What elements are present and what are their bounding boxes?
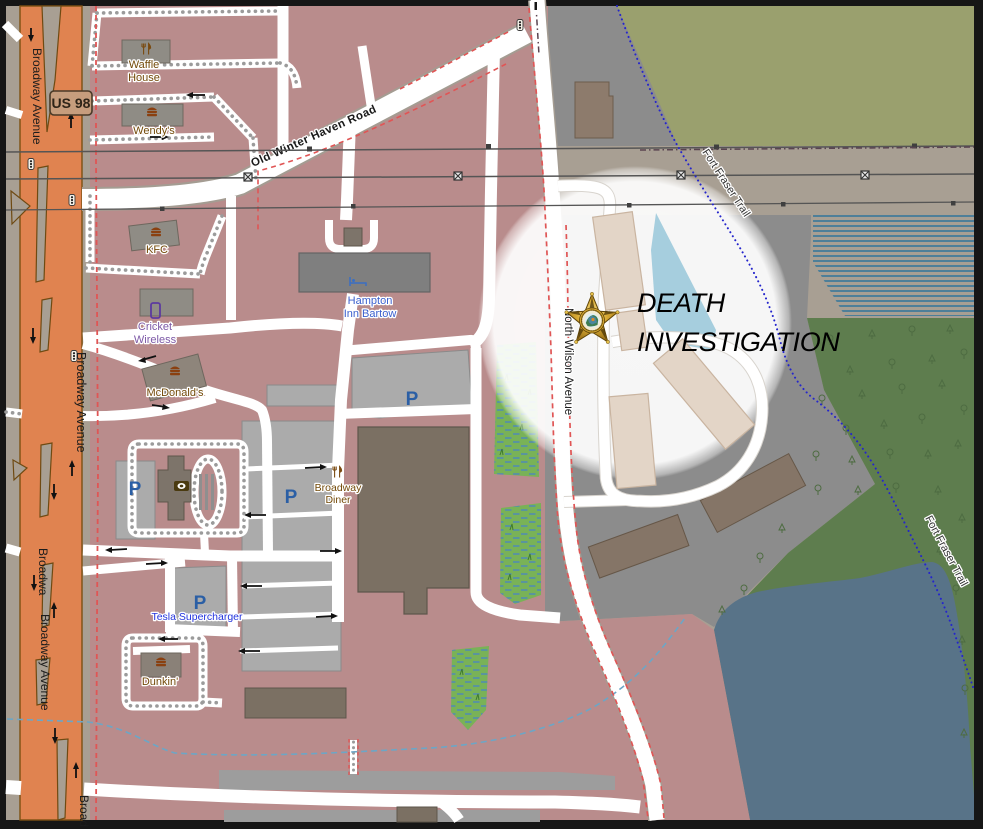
svg-text:Broad: Broad bbox=[77, 795, 91, 827]
svg-text:House: House bbox=[128, 72, 160, 84]
svg-text:Broadway Avenue: Broadway Avenue bbox=[74, 352, 88, 453]
svg-text:US 98: US 98 bbox=[52, 95, 91, 111]
svg-text:Broadway: Broadway bbox=[315, 482, 362, 494]
svg-text:Dunkin': Dunkin' bbox=[142, 676, 178, 688]
svg-text:McDonald's: McDonald's bbox=[146, 387, 204, 399]
svg-text:Wireless: Wireless bbox=[134, 334, 177, 346]
svg-text:P: P bbox=[406, 389, 419, 410]
svg-text:P: P bbox=[285, 487, 298, 508]
svg-text:Broadwa: Broadwa bbox=[36, 548, 50, 596]
svg-text:Broadway Avenue: Broadway Avenue bbox=[38, 614, 52, 711]
svg-text:DEATH: DEATH bbox=[637, 288, 726, 318]
svg-text:P: P bbox=[194, 593, 207, 614]
svg-text:Inn Bartow: Inn Bartow bbox=[344, 308, 397, 320]
svg-text:North Wilson Avenue: North Wilson Avenue bbox=[562, 308, 574, 415]
svg-text:Broadway Avenue: Broadway Avenue bbox=[30, 48, 44, 145]
svg-text:Hampton: Hampton bbox=[348, 295, 393, 307]
svg-text:KFC: KFC bbox=[146, 244, 168, 256]
svg-text:Wendy's: Wendy's bbox=[133, 125, 175, 137]
svg-text:P: P bbox=[129, 479, 142, 500]
svg-text:Waffle: Waffle bbox=[129, 59, 160, 71]
svg-text:INVESTIGATION: INVESTIGATION bbox=[637, 327, 840, 357]
svg-text:Cricket: Cricket bbox=[138, 321, 172, 333]
svg-text:Diner: Diner bbox=[325, 494, 351, 506]
